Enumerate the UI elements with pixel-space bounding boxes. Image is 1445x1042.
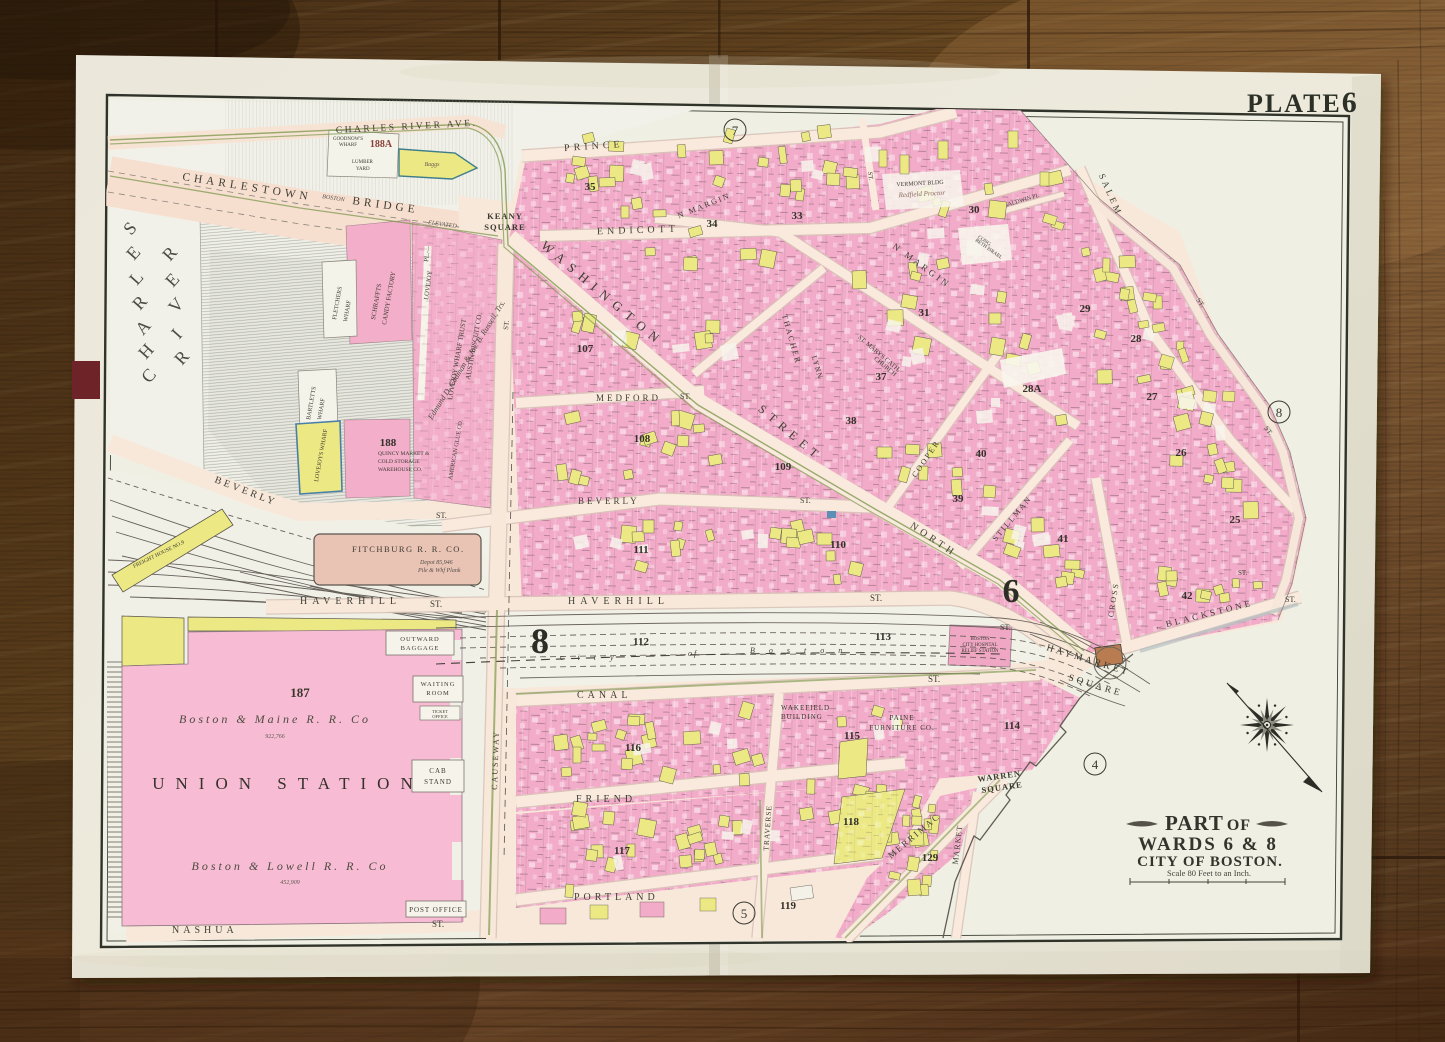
svg-text:COLD STORAGE: COLD STORAGE bbox=[378, 459, 420, 465]
svg-text:c i t y: c i t y bbox=[560, 653, 620, 662]
svg-text:FITCHBURG R. R. CO.: FITCHBURG R. R. CO. bbox=[352, 544, 465, 554]
svg-text:PORTLAND: PORTLAND bbox=[574, 892, 659, 903]
svg-text:ST.: ST. bbox=[800, 496, 811, 505]
svg-text:117: 117 bbox=[614, 845, 630, 857]
svg-text:38: 38 bbox=[846, 415, 858, 427]
svg-text:111: 111 bbox=[633, 544, 648, 556]
svg-text:CAB: CAB bbox=[429, 767, 446, 775]
svg-text:YARD: YARD bbox=[356, 167, 370, 172]
svg-text:28: 28 bbox=[1131, 333, 1143, 345]
svg-text:B o s t o n: B o s t o n bbox=[750, 646, 848, 655]
svg-text:107: 107 bbox=[577, 343, 594, 355]
svg-text:QUINCY MARKET &: QUINCY MARKET & bbox=[378, 451, 430, 457]
svg-text:ROOM: ROOM bbox=[426, 690, 450, 697]
svg-text:HAVERHILL: HAVERHILL bbox=[300, 596, 401, 607]
svg-text:MEDFORD: MEDFORD bbox=[596, 393, 661, 403]
svg-text:WARDS 6 & 8: WARDS 6 & 8 bbox=[1138, 834, 1278, 855]
svg-text:HAVERHILL: HAVERHILL bbox=[568, 596, 669, 607]
svg-text:114: 114 bbox=[1004, 720, 1020, 732]
svg-text:108: 108 bbox=[634, 433, 651, 445]
svg-text:ST.: ST. bbox=[1285, 595, 1296, 604]
svg-text:25: 25 bbox=[1230, 514, 1242, 526]
svg-text:116: 116 bbox=[625, 742, 641, 754]
svg-text:5: 5 bbox=[741, 906, 748, 921]
svg-text:Boston & Maine R. R. Co: Boston & Maine R. R. Co bbox=[179, 712, 371, 726]
svg-text:ST.: ST. bbox=[870, 593, 882, 603]
svg-text:ST.: ST. bbox=[866, 171, 874, 181]
svg-text:KEANY: KEANY bbox=[487, 211, 523, 221]
svg-text:Depot 85,946: Depot 85,946 bbox=[419, 559, 453, 566]
svg-text:ST.: ST. bbox=[1238, 569, 1248, 577]
svg-text:39: 39 bbox=[953, 493, 965, 505]
svg-text:28A: 28A bbox=[1023, 383, 1042, 395]
svg-text:NASHUA: NASHUA bbox=[172, 925, 238, 936]
svg-text:GOODNOW'S: GOODNOW'S bbox=[333, 137, 363, 142]
svg-text:WAREHOUSE CO.: WAREHOUSE CO. bbox=[378, 467, 423, 473]
svg-text:ST.: ST. bbox=[502, 320, 511, 330]
svg-text:OUTWARD: OUTWARD bbox=[400, 636, 440, 643]
svg-text:Boston & Lowell R. R. Co: Boston & Lowell R. R. Co bbox=[191, 859, 388, 873]
svg-text:STAND: STAND bbox=[424, 778, 452, 786]
svg-text:110: 110 bbox=[830, 539, 846, 551]
svg-text:Pile & Whf Plank: Pile & Whf Plank bbox=[417, 567, 461, 574]
svg-text:33: 33 bbox=[792, 210, 804, 222]
svg-text:34: 34 bbox=[707, 218, 719, 230]
svg-text:452,909: 452,909 bbox=[280, 879, 300, 886]
svg-text:LUMBER: LUMBER bbox=[352, 160, 374, 165]
svg-text:FRIEND: FRIEND bbox=[576, 794, 636, 805]
svg-text:31: 31 bbox=[919, 307, 930, 319]
svg-text:922,766: 922,766 bbox=[265, 734, 285, 740]
svg-text:ST.: ST. bbox=[680, 392, 691, 401]
svg-text:WAKEFIELD: WAKEFIELD bbox=[781, 704, 830, 712]
svg-text:POST OFFICE: POST OFFICE bbox=[409, 906, 463, 914]
svg-text:188: 188 bbox=[380, 437, 397, 449]
svg-text:113: 113 bbox=[875, 631, 891, 643]
svg-text:26: 26 bbox=[1176, 447, 1188, 459]
svg-text:SQUARE: SQUARE bbox=[484, 222, 525, 232]
svg-text:WHARF: WHARF bbox=[339, 143, 357, 148]
svg-text:40: 40 bbox=[976, 448, 988, 460]
svg-text:109: 109 bbox=[775, 461, 792, 473]
svg-text:PLATE6: PLATE6 bbox=[1247, 86, 1359, 119]
svg-text:FURNITURE CO.: FURNITURE CO. bbox=[869, 724, 935, 732]
svg-text:4: 4 bbox=[1092, 757, 1099, 772]
svg-text:ST.: ST. bbox=[1000, 623, 1011, 632]
svg-text:27: 27 bbox=[1147, 391, 1159, 403]
svg-text:42: 42 bbox=[1182, 590, 1194, 602]
svg-text:129: 129 bbox=[922, 852, 939, 864]
svg-text:Baggs: Baggs bbox=[425, 162, 441, 168]
svg-text:7: 7 bbox=[732, 123, 739, 138]
svg-text:ST.: ST. bbox=[928, 674, 940, 684]
svg-text:BAGGAGE: BAGGAGE bbox=[401, 645, 440, 652]
svg-text:ST.: ST. bbox=[430, 599, 442, 609]
svg-text:Scale 80 Feet to an Inch.: Scale 80 Feet to an Inch. bbox=[1167, 868, 1251, 878]
svg-text:OFFICE: OFFICE bbox=[432, 714, 448, 719]
svg-text:37: 37 bbox=[876, 371, 888, 383]
svg-text:35: 35 bbox=[585, 181, 597, 193]
svg-text:188A: 188A bbox=[370, 139, 393, 150]
svg-text:30: 30 bbox=[969, 204, 981, 216]
svg-text:WAITING: WAITING bbox=[421, 681, 456, 688]
svg-text:ST.: ST. bbox=[436, 511, 447, 520]
svg-text:CANAL: CANAL bbox=[577, 690, 631, 701]
svg-text:8: 8 bbox=[531, 621, 549, 661]
svg-text:BUILDING: BUILDING bbox=[781, 713, 823, 721]
svg-text:41: 41 bbox=[1058, 533, 1069, 545]
svg-text:UNION STATION: UNION STATION bbox=[152, 774, 424, 793]
svg-text:PAINE: PAINE bbox=[890, 714, 915, 722]
svg-text:6: 6 bbox=[1003, 573, 1020, 610]
svg-text:112: 112 bbox=[633, 636, 649, 648]
svg-text:115: 115 bbox=[844, 730, 860, 742]
svg-text:187: 187 bbox=[290, 685, 310, 700]
svg-text:8: 8 bbox=[1276, 405, 1283, 420]
svg-text:BOSTON: BOSTON bbox=[970, 637, 990, 642]
svg-text:119: 119 bbox=[780, 900, 796, 912]
svg-text:BEVERLY: BEVERLY bbox=[578, 496, 640, 506]
svg-text:29: 29 bbox=[1080, 303, 1092, 315]
svg-text:ST.: ST. bbox=[432, 919, 444, 929]
svg-text:CITY HOSPITAL: CITY HOSPITAL bbox=[962, 643, 997, 648]
svg-text:118: 118 bbox=[843, 816, 859, 828]
